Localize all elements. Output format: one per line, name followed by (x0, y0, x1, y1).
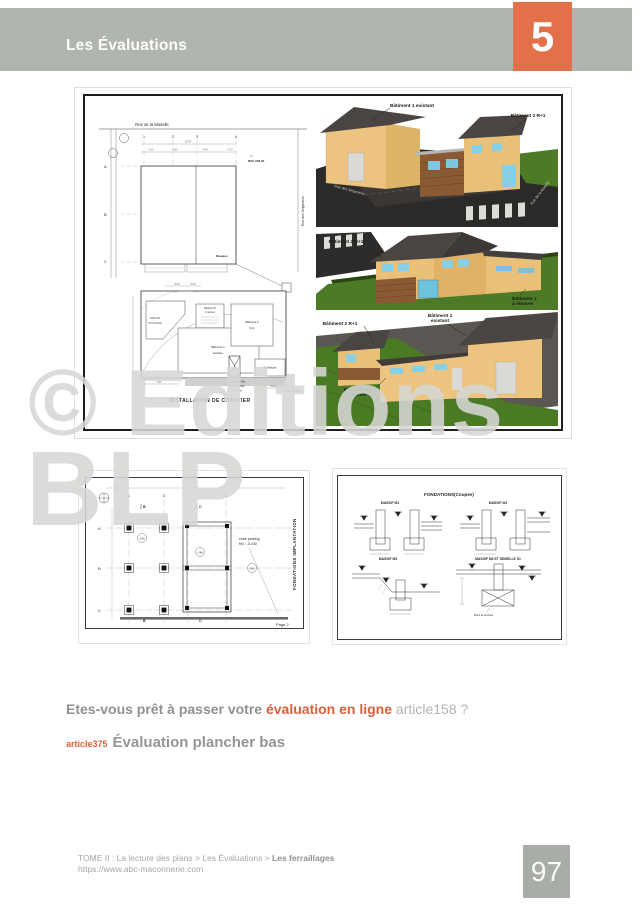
dim-3: 4.90 (202, 148, 208, 152)
bat-c-l2: Existant (213, 351, 223, 355)
site-plan: Rue de la Moselle 1 2 3 4 19.97 (99, 122, 307, 292)
section-title: Évaluation plancher bas (113, 734, 286, 751)
crane-l2: Flèche 28.00m (229, 385, 245, 388)
render1-label-left: Bâtiment 1 existant (390, 103, 434, 109)
level-value: NGF 206.00 (248, 159, 265, 163)
dim-4: 4.23 (227, 148, 233, 152)
grid-row-b: B (104, 212, 107, 217)
impl-grid-row-b: B (98, 566, 101, 571)
reseaux-label: Réseaux (216, 254, 228, 258)
level-label: Tn (250, 154, 254, 158)
implantation-sheet: 1 2 3 4 A B C (85, 477, 304, 629)
render2-label-left: Bâtiment 2 R+1 (329, 239, 364, 245)
impl-grid-row-a: A (98, 526, 101, 531)
implantation-side-title: FONDATIONS IMPLANTATION (292, 518, 297, 590)
render3-label-center-l2: existant (431, 318, 450, 324)
crane-l1: Grue GMR 36m (229, 381, 246, 384)
strip-footing (183, 522, 231, 612)
section-heading: article375 Évaluation plancher bas (66, 734, 285, 751)
render-2: Bâtiment 2 R+1 Bâtiment 3 à rénover (316, 232, 558, 310)
marker-c-top: C (199, 505, 202, 509)
footer-url: https://www.abc-maconnerie.com (78, 864, 334, 875)
question-article-ref: article158 ? (392, 701, 468, 717)
street-right-label: Rue des Singerains (301, 196, 305, 226)
detail-m4: Béton de propreté (456, 564, 541, 617)
render3-label-left: Bâtiment 2 R+1 (323, 321, 358, 327)
figure-fondations-coupes: FONDATIONS(Coupes) MASSIF M1 MASSIF M2 M… (332, 468, 567, 645)
impl-grid-col-3: 3 (187, 493, 190, 498)
question-highlight: évaluation en ligne (266, 701, 392, 717)
bat-c-l1: Bâtiment C (211, 345, 224, 349)
grid-col-4: 4 (235, 134, 238, 139)
impl-grid-row-c: C (98, 608, 101, 613)
coupes-drawing: FONDATIONS(Coupes) MASSIF M1 MASSIF M2 M… (338, 476, 561, 639)
page-number-badge: 97 (523, 845, 570, 898)
detail-m3 (352, 566, 440, 614)
chantier-dim-top1: 5.00 (174, 282, 180, 286)
chantier-dim-left: 4.00 (156, 380, 162, 384)
dim-2: 4.90 (172, 148, 178, 152)
chantier-dim-top2: 3.00 (190, 282, 196, 286)
render3-label-bottom-l2: à rénover (345, 392, 367, 398)
impl-grid-col-2: 2 (163, 493, 166, 498)
drawing-sheet: Rue de la Moselle 1 2 3 4 19.97 (83, 94, 563, 431)
section-article-ref: article375 (66, 739, 108, 749)
level-1: -0.45 (139, 537, 145, 540)
level-3: -0.46 (249, 567, 255, 570)
dim-1: 3.10 (148, 148, 154, 152)
level-2: -0.86 (197, 551, 203, 554)
m4-note: Béton de propreté (474, 614, 494, 617)
page-ref: Page 2 (276, 622, 289, 627)
render2-label-right-l2: à rénover (512, 301, 534, 307)
chapter-number-badge: 5 (513, 2, 572, 71)
impl-note-l1: zone parking (239, 537, 260, 541)
breadcrumb: TOME II : La lecture des plans > Les Éva… (78, 853, 334, 864)
impl-grid-col-4: 4 (225, 493, 228, 498)
stockage-l2: STOCKAGE (148, 322, 162, 325)
coupes-title: FONDATIONS(Coupes) (424, 492, 474, 497)
caption-m3: MASSIF M3 (379, 557, 398, 561)
access-label: Accès Chantier (284, 390, 300, 393)
grid-row-c: C (104, 259, 107, 264)
marker-b-top: B (143, 505, 146, 509)
street-top-label: Rue de la Moselle (135, 122, 169, 127)
impl-grid-col-1: 1 (128, 493, 131, 498)
evaluation-question: Etes-vous prêt à passer votre évaluation… (66, 701, 606, 717)
grid-row-a: A (104, 164, 107, 169)
plans-3d-drawing: Rue de la Moselle 1 2 3 4 19.97 (85, 96, 561, 429)
grid-col-1: 1 (143, 134, 146, 139)
impl-note-l2: fini : -0.240 (239, 542, 257, 546)
bat-b-l1: Bâtiment B (204, 307, 216, 310)
stockage-l1: AIRE DE (150, 317, 160, 320)
grid-col-2: 2 (172, 134, 175, 139)
crane-l3: 17.620 m (232, 390, 242, 393)
render1-label-right: Bâtiment 2 R+1 (511, 113, 546, 119)
dim-total: 19.97 (185, 140, 192, 144)
chantier-dim-right: 6.00 (270, 384, 276, 388)
figure-fondations-implantation: 1 2 3 4 A B C (78, 470, 310, 644)
detail-m1 (354, 510, 442, 554)
breadcrumb-prefix: TOME II : La lecture des plans > Les Éva… (78, 853, 272, 863)
document-page: Les Évaluations 5 Rue de la Moselle 1 2 … (0, 0, 640, 906)
render-3: Bâtiment 2 R+1 Bâtiment 1 existant Bâtim… (316, 312, 558, 426)
page-footer: TOME II : La lecture des plans > Les Éva… (78, 853, 334, 875)
figure-plans-3d: Rue de la Moselle 1 2 3 4 19.97 (74, 87, 572, 439)
bat-b-l2: à rénover (205, 311, 215, 314)
render-1: Bâtiment 1 existant Bâtiment 2 R+1 Rue d… (316, 103, 558, 227)
chapter-title: Les Évaluations (66, 37, 187, 55)
detail-m2 (460, 510, 550, 554)
caption-m2: MASSIF M2 (489, 501, 508, 505)
coupes-sheet: FONDATIONS(Coupes) MASSIF M1 MASSIF M2 M… (337, 475, 562, 640)
implantation-drawing: 1 2 3 4 A B C (86, 478, 303, 628)
prefab-label: Préfabriqués (263, 367, 277, 370)
caption-m1: MASSIF M1 (381, 501, 400, 505)
bat-a-l1: Bâtiment A (246, 320, 259, 324)
chantier-caption: INSTALLATION DE CHANTIER (169, 398, 250, 404)
grid-col-3: 3 (196, 134, 199, 139)
caption-m4: MASSIF M4 ET SEMELLE S1 (475, 557, 521, 561)
bat-a-l2: R+1 (249, 326, 255, 330)
question-prefix: Etes-vous prêt à passer votre (66, 701, 266, 717)
crane-symbol (229, 356, 240, 376)
chantier-plan: AIRE DE STOCKAGE Bâtiment B à rénover Bâ… (133, 282, 300, 404)
breadcrumb-current: Les ferraillages (272, 853, 334, 863)
